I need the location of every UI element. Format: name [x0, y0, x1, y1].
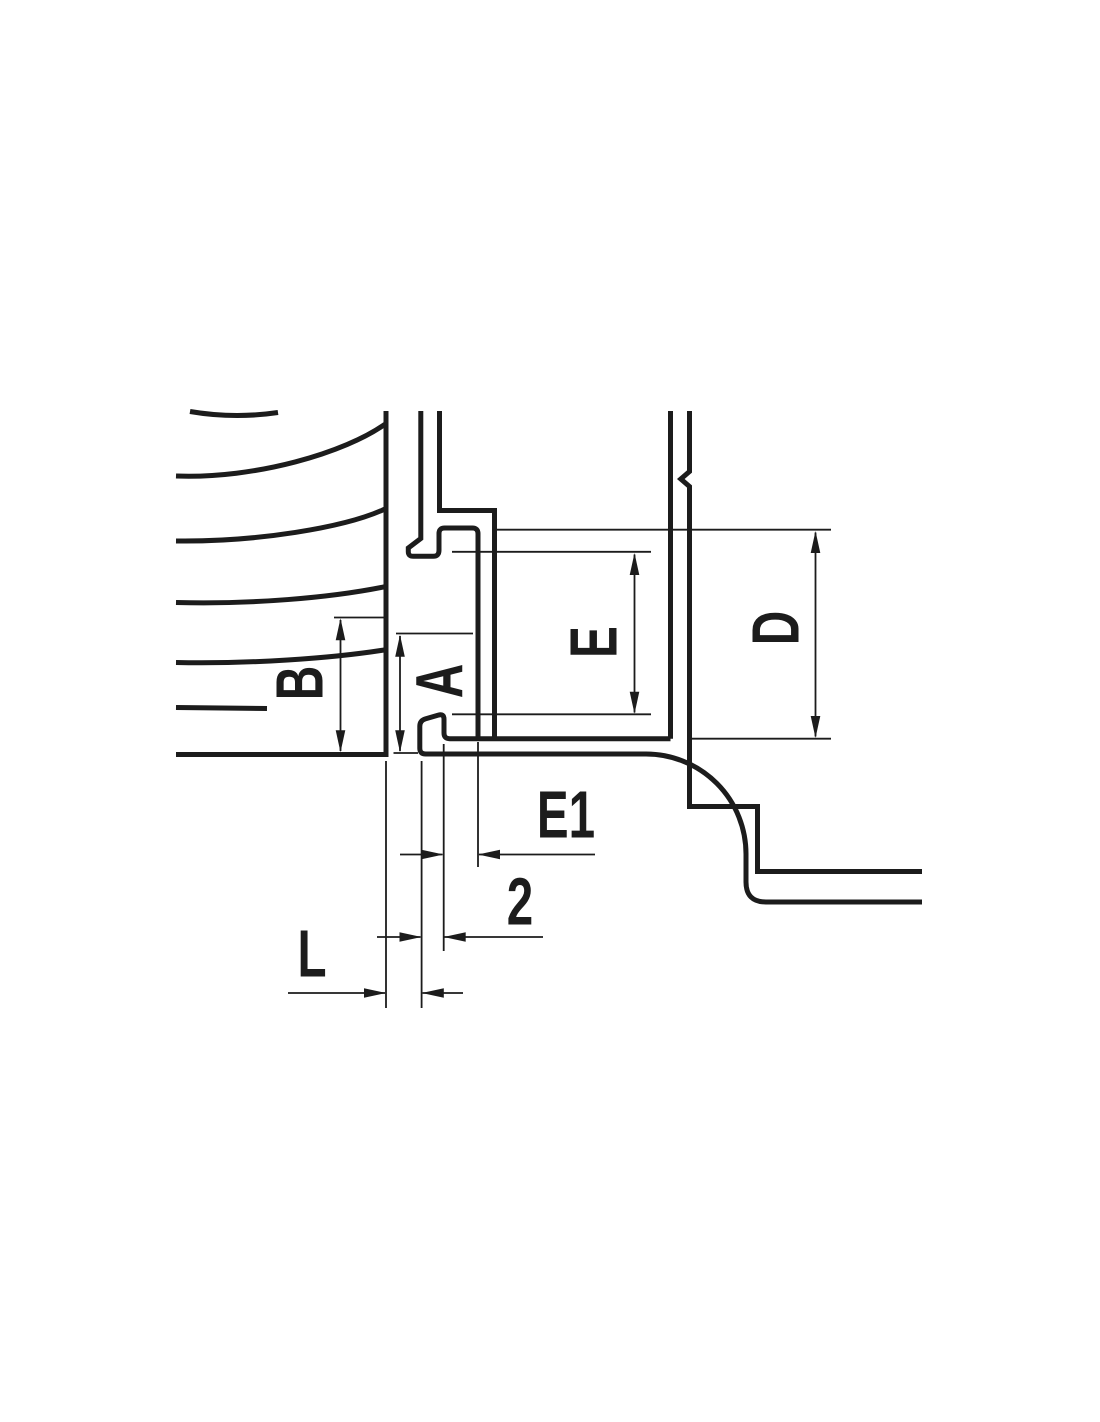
shaft-contour-arc-3	[176, 509, 386, 542]
shaft-edge-and-bottom	[176, 411, 386, 755]
dim-label-a: A	[407, 664, 474, 698]
dimension-arrowheads	[336, 531, 821, 998]
arrow-b-up	[336, 618, 346, 640]
seal-profile	[408, 411, 922, 902]
dim-label-e1: E1	[537, 782, 595, 849]
arrow-l-left	[422, 988, 444, 998]
dimension-lines	[288, 533, 816, 994]
arrow-2-right	[400, 932, 422, 942]
dim-label-l: L	[297, 921, 326, 988]
arrow-d-down	[811, 716, 821, 738]
dim-label-e: E	[561, 626, 628, 658]
shaft-contour-arc-2	[176, 424, 386, 477]
arrow-l-right	[364, 988, 386, 998]
shaft-contour-line-6	[176, 708, 267, 709]
arrow-a-up	[395, 635, 405, 657]
shaft-contour-arc-1	[190, 412, 278, 416]
dim-label-2: 2	[507, 869, 533, 936]
arrow-e-up	[630, 553, 640, 575]
arrow-a-down	[395, 730, 405, 752]
technical-drawing-canvas: B A E D E1 2 L	[0, 0, 1100, 1422]
arrow-e1-left	[478, 850, 500, 860]
shaft-body	[176, 411, 386, 755]
shaft-contour-arc-4	[176, 587, 386, 603]
drawing-linework	[0, 0, 1100, 1422]
arrow-d-up	[811, 531, 821, 553]
arrow-e-down	[630, 692, 640, 714]
arrow-e1-right	[422, 850, 444, 860]
dim-label-d: D	[743, 611, 810, 645]
arrow-b-down	[336, 730, 346, 752]
shaft-contour-arc-5	[176, 650, 384, 663]
dim-label-b: B	[267, 666, 334, 700]
arrow-2-left	[444, 932, 466, 942]
